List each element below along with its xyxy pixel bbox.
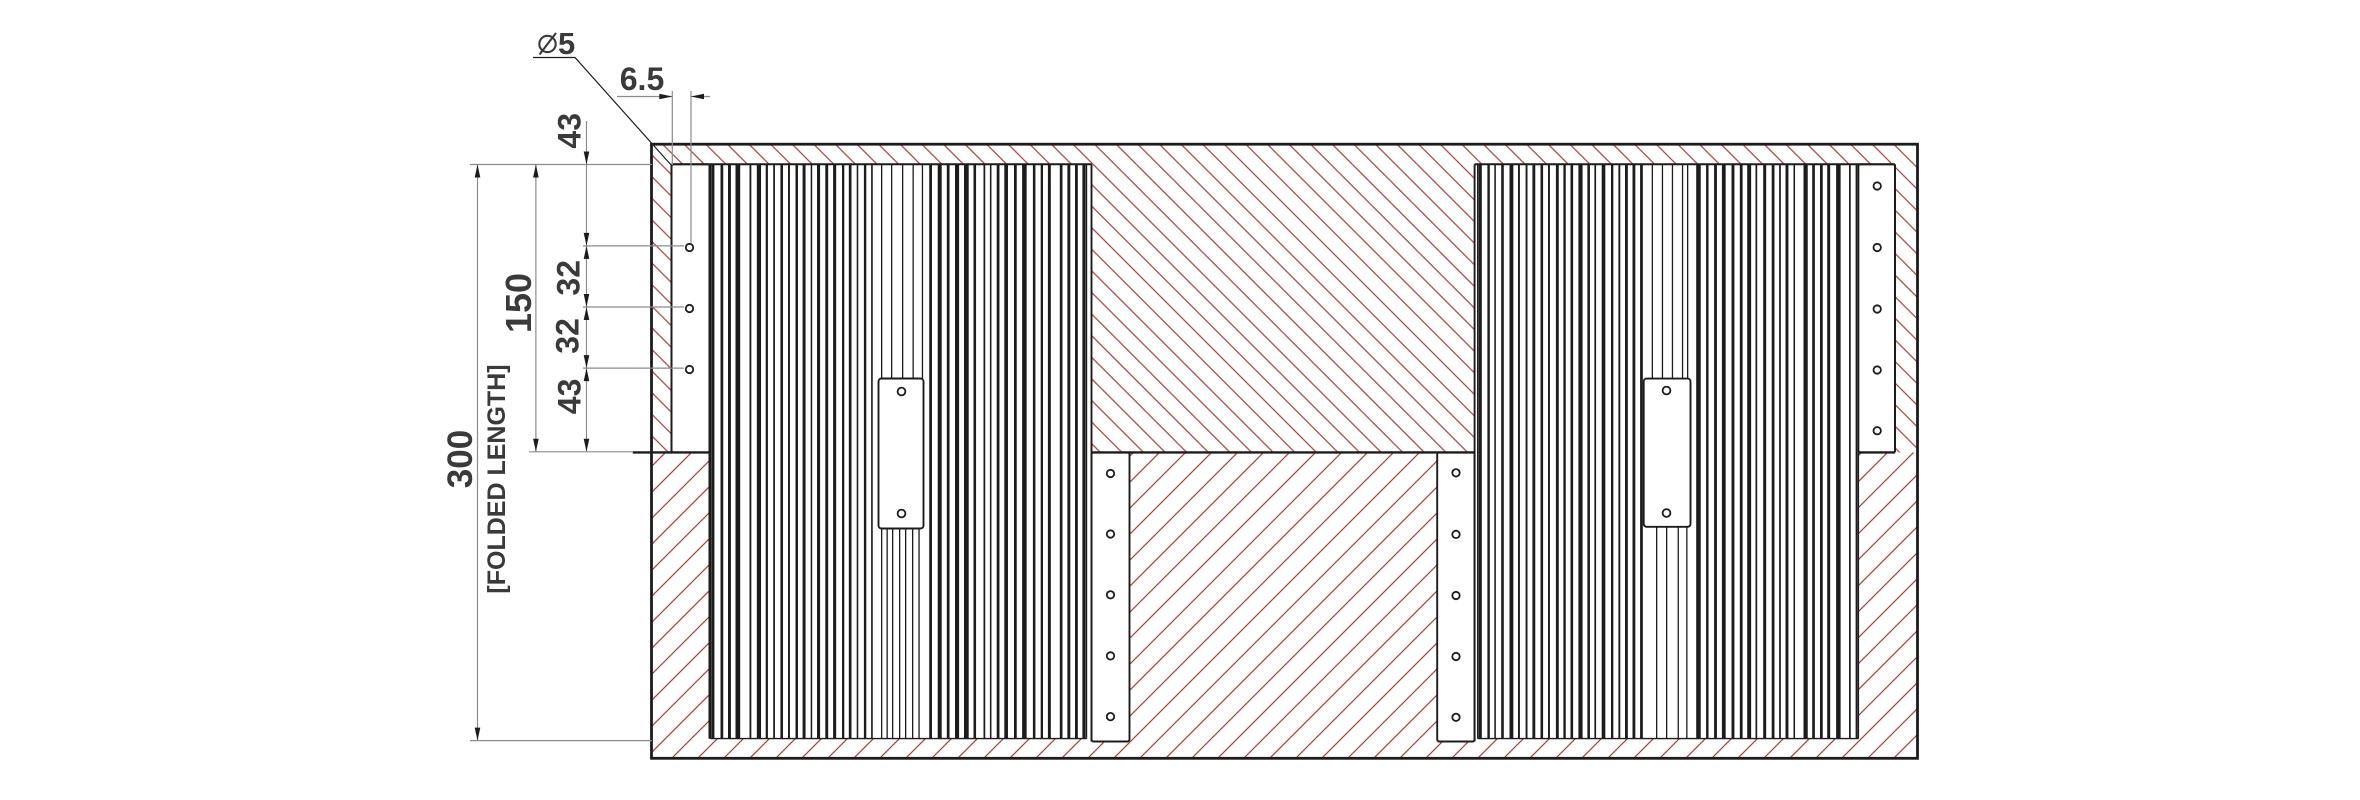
svg-text:[FOLDED LENGTH]: [FOLDED LENGTH]: [483, 364, 511, 593]
svg-text:300: 300: [441, 430, 480, 488]
svg-text:150: 150: [498, 273, 539, 333]
svg-text:32: 32: [550, 318, 586, 354]
svg-text:43: 43: [552, 379, 588, 415]
svg-text:32: 32: [551, 260, 587, 296]
svg-text:43: 43: [552, 113, 588, 149]
svg-text:5: 5: [558, 26, 575, 61]
svg-text:6.5: 6.5: [620, 61, 664, 97]
